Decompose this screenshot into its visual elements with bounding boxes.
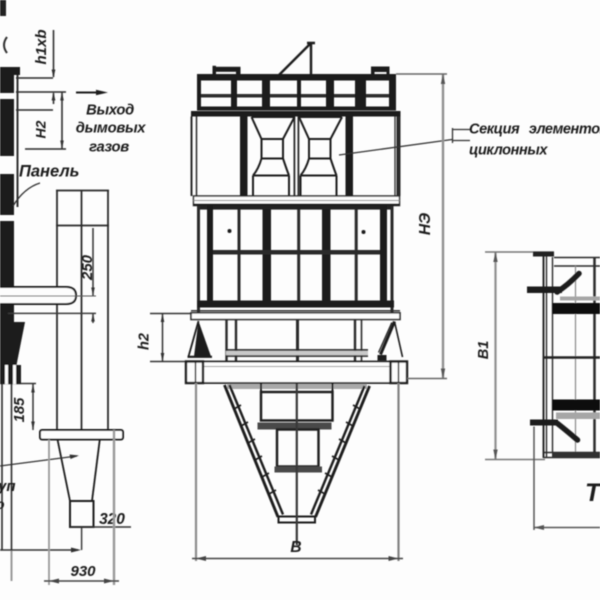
svg-text:Выход: Выход bbox=[86, 103, 134, 119]
svg-text:В1: В1 bbox=[476, 341, 492, 360]
svg-text:В: В bbox=[290, 539, 301, 556]
svg-text:Секция элементов: Секция элементов bbox=[469, 122, 600, 138]
svg-text:НЭ: НЭ bbox=[417, 213, 434, 235]
svg-text:Панель: Панель bbox=[19, 163, 79, 181]
svg-text:Т: Т bbox=[585, 479, 600, 507]
svg-text:H2: H2 bbox=[33, 120, 49, 138]
svg-text:320: 320 bbox=[99, 511, 125, 528]
svg-text:h2: h2 bbox=[137, 333, 153, 350]
svg-text:185: 185 bbox=[12, 397, 28, 422]
svg-text:газов: газов bbox=[89, 140, 129, 156]
svg-text:h1xb: h1xb bbox=[33, 29, 50, 64]
svg-text:о: о bbox=[0, 496, 5, 512]
svg-text:дымовых: дымовых bbox=[76, 121, 147, 137]
svg-text:930: 930 bbox=[70, 563, 96, 580]
svg-text:250: 250 bbox=[79, 254, 96, 281]
svg-text:уп: уп bbox=[0, 478, 16, 495]
svg-text:циклонных: циклонных bbox=[469, 143, 548, 159]
